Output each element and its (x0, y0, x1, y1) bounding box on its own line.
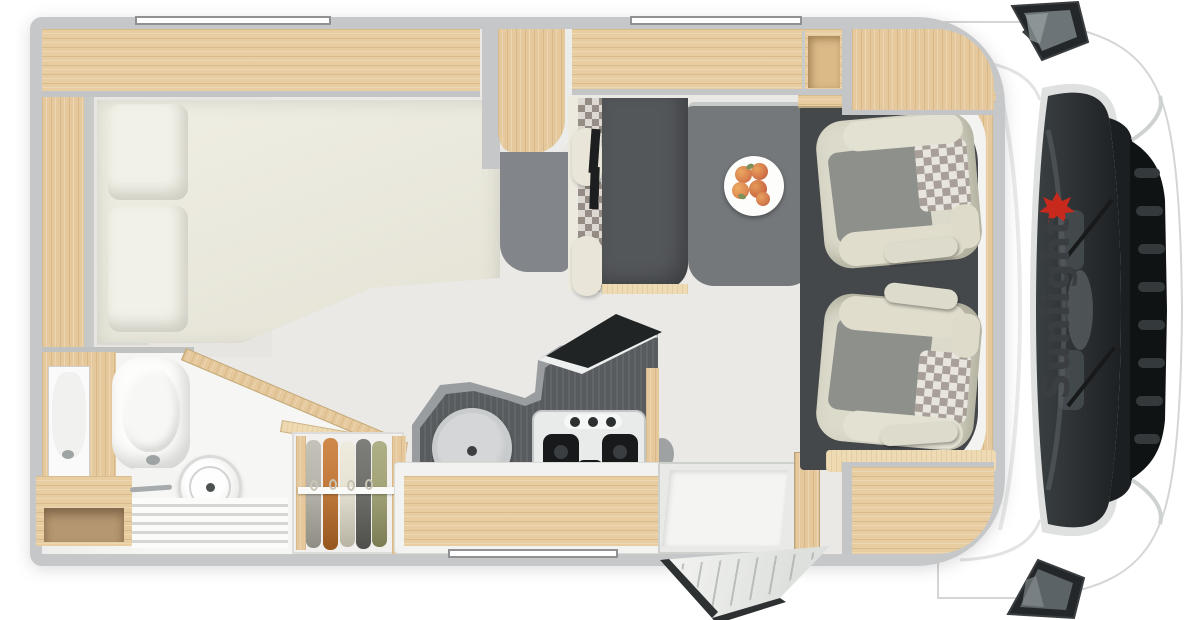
tall-cabinet-top (500, 152, 570, 272)
toilet-lid (122, 368, 180, 452)
pillow (108, 206, 188, 332)
shower-drain-dot (206, 483, 215, 492)
hanger-hook (365, 479, 373, 490)
hanger-hook (329, 479, 337, 490)
hanging-clothes (306, 438, 388, 550)
shower-floor-slats (132, 498, 288, 548)
sink-drain (467, 446, 477, 456)
pillow (108, 104, 188, 200)
travel-bench-seat (602, 98, 688, 290)
window-skylight (630, 16, 802, 25)
entry-step (662, 470, 788, 546)
open-shelf (808, 36, 840, 88)
garment (372, 441, 387, 547)
hob-knob (588, 417, 598, 427)
burner-cap (613, 445, 627, 459)
toilet-flush-button (146, 455, 160, 465)
bench-base-trim (602, 284, 688, 294)
seat-headrest-checker (914, 350, 972, 424)
fruit-plate (724, 156, 784, 216)
garment (323, 438, 338, 550)
locker-divider (802, 31, 805, 91)
mirror-reflection (52, 372, 86, 458)
window-skylight (448, 549, 618, 558)
window-skylight (135, 16, 331, 25)
peach (756, 192, 770, 206)
hob-knob (570, 417, 580, 427)
tall-cabinet (498, 29, 572, 161)
burner-cap (554, 445, 568, 459)
sunlight-logo-text: Sunlight (1035, 216, 1078, 399)
overhead-locker-bed (42, 29, 480, 97)
garment (306, 440, 321, 548)
garment (356, 439, 371, 549)
seatbelt-strap (589, 167, 599, 209)
floorplan-stage: Sunlight (0, 0, 1200, 620)
vanity-open-front (44, 508, 124, 542)
overhead-locker-cab-bottom (842, 462, 994, 554)
radiator-grille (1130, 140, 1167, 480)
entrance-door-open (652, 540, 842, 620)
hob-knob (606, 417, 616, 427)
garment (340, 441, 355, 547)
mirror-dot (62, 450, 74, 459)
hanger-hook (347, 480, 355, 491)
headrest-cushion (572, 236, 602, 296)
hanger-hook (310, 480, 318, 491)
seat-bolster (950, 313, 982, 359)
rear-shelf (42, 95, 90, 357)
seat-headrest-checker (914, 138, 972, 212)
overhead-locker-cab-top (842, 29, 994, 115)
